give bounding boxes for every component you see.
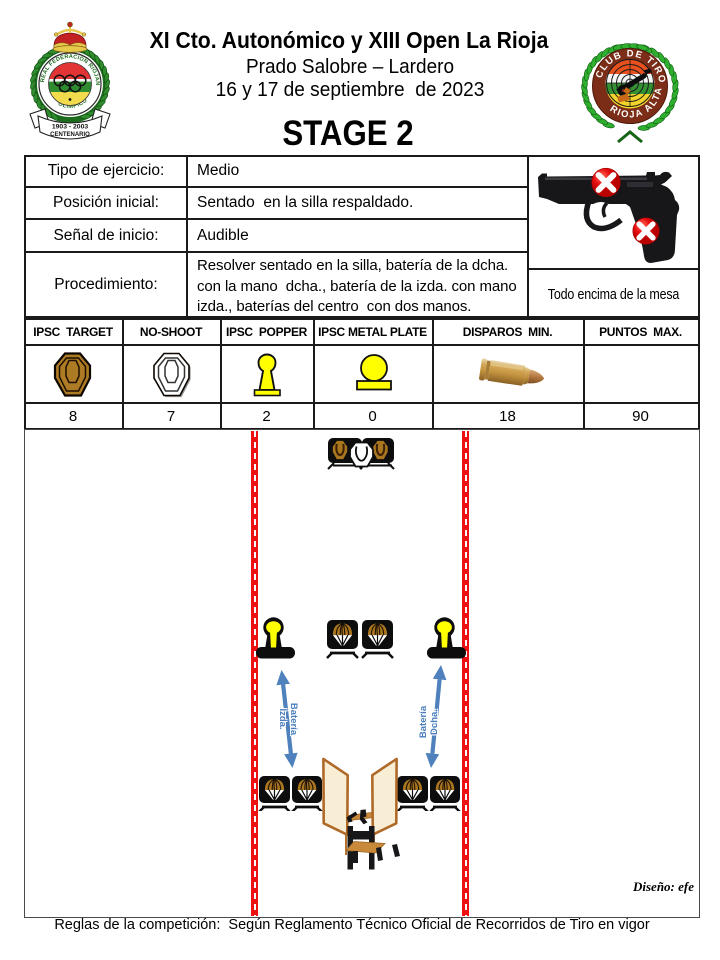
svg-text:1903 - 2003: 1903 - 2003 [52,124,89,131]
svg-text:CENTENARIO: CENTENARIO [50,132,90,138]
